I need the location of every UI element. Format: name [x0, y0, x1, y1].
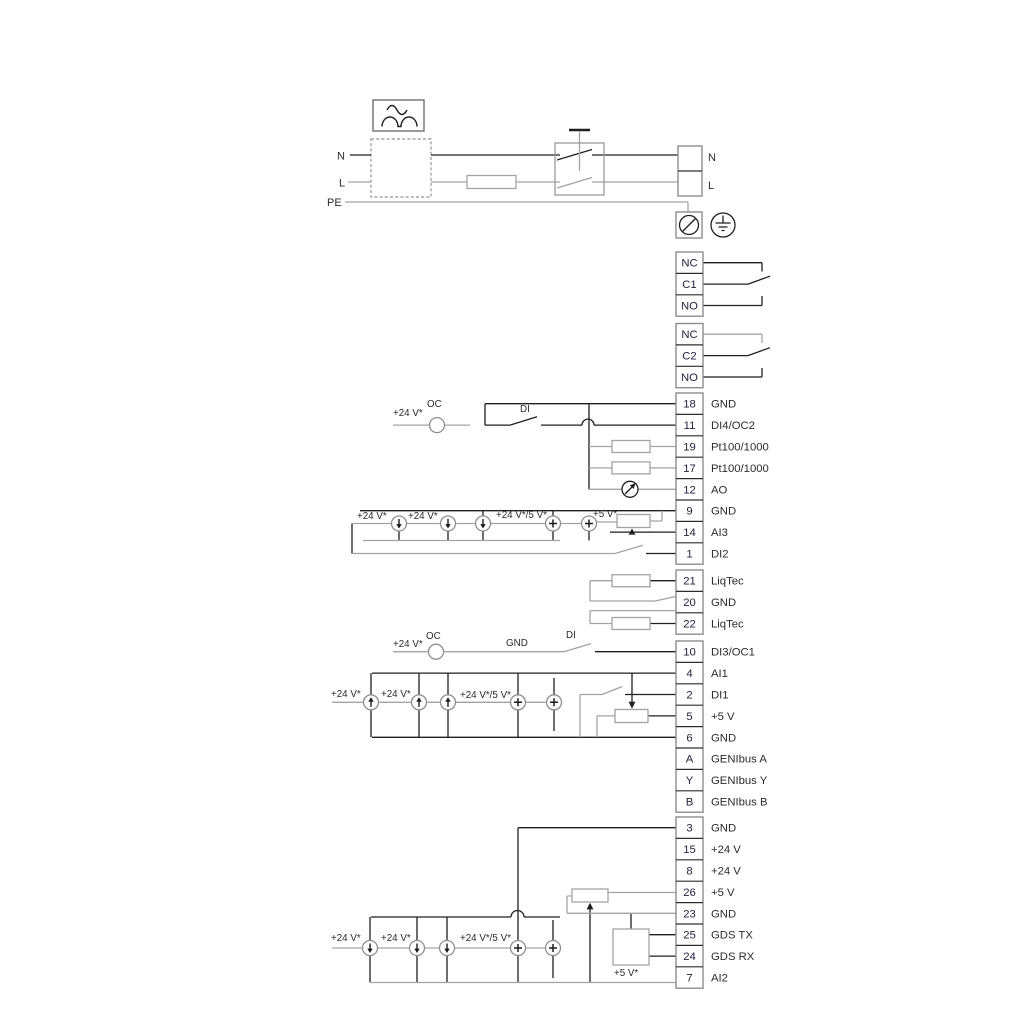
label-plus24v-ai2-2: +24 V* — [381, 933, 411, 944]
source-plus-icon — [546, 941, 561, 956]
terminal-15-number: 15 — [683, 844, 696, 856]
pt100-resistor — [612, 441, 650, 453]
terminal-23-number: 23 — [683, 908, 696, 920]
terminal-26-number: 26 — [683, 887, 696, 899]
label-pe-left: PE — [327, 197, 342, 209]
terminal-11-number: 11 — [684, 420, 696, 432]
liqtec-sensor-resistor — [612, 575, 650, 587]
terminal-6-number: 6 — [686, 732, 692, 744]
relay2-terminal-NO: NO — [681, 372, 698, 384]
label-plus24v-ai1-1: +24 V* — [331, 689, 361, 700]
label-di-di4: DI — [520, 404, 530, 415]
source-arrow-down-icon — [441, 516, 456, 531]
potentiometer-ai1 — [615, 710, 648, 723]
terminal-20-label: GND — [711, 597, 736, 609]
terminal-1-number: 1 — [686, 549, 692, 561]
terminal-22-label: LiqTec — [711, 619, 744, 631]
terminal-19-label: Pt100/1000 — [711, 442, 769, 454]
terminal-4-number: 4 — [686, 668, 692, 680]
terminal-10-label: DI3/OC1 — [711, 647, 755, 659]
fuse — [467, 176, 516, 189]
label-plus24v-5v-ai2: +24 V*/5 V* — [460, 933, 511, 944]
terminal-A-number: A — [686, 754, 694, 766]
label-n-right: N — [708, 152, 716, 164]
terminal-2-number: 2 — [686, 690, 692, 702]
terminal-24-label: GDS RX — [711, 951, 755, 963]
terminal-5-label: +5 V — [711, 711, 735, 723]
label-plus24v-di4: +24 V* — [393, 408, 423, 419]
terminal-Y-label: GENIbus Y — [711, 775, 768, 787]
terminal-8-number: 8 — [686, 866, 692, 878]
earth-icon — [711, 213, 735, 237]
terminal-21-label: LiqTec — [711, 576, 744, 588]
label-plus24v-ai3-2: +24 V* — [408, 511, 438, 522]
source-arrow-down-icon — [363, 941, 378, 956]
n-wire — [350, 150, 678, 161]
relay1-terminal-NC: NC — [681, 258, 697, 270]
label-l-right: L — [708, 180, 714, 192]
ao-meter-icon — [622, 481, 638, 497]
terminal-Y-number: Y — [686, 775, 694, 787]
source-arrow-down-icon — [440, 941, 455, 956]
relay1-terminal-C1: C1 — [682, 279, 696, 291]
terminal-3-number: 3 — [686, 823, 692, 835]
terminal-18-number: 18 — [683, 399, 696, 411]
terminal-6-label: GND — [711, 732, 736, 744]
source-arrow-down-icon — [476, 516, 491, 531]
source-arrow-up-icon — [412, 695, 427, 710]
relay2-nc-wire — [703, 334, 762, 343]
relay1-terminal-NO: NO — [681, 301, 698, 313]
terminal-22-number: 22 — [683, 619, 696, 631]
terminal-9-number: 9 — [686, 506, 692, 518]
label-plus5v-gds: +5 V* — [614, 968, 638, 979]
terminal-12-label: AO — [711, 484, 728, 496]
label-di-di3: DI — [566, 630, 576, 641]
terminal-7-label: AI2 — [711, 973, 728, 985]
terminal-21-number: 21 — [683, 576, 696, 588]
terminal-B-number: B — [686, 797, 694, 809]
open-collector-icon — [430, 418, 445, 433]
label-oc-di4: OC — [427, 399, 442, 410]
source-arrow-down-icon — [392, 516, 407, 531]
terminal-23-label: GND — [711, 908, 736, 920]
l-pe-wires — [345, 131, 688, 212]
terminal-24-number: 24 — [683, 951, 696, 963]
label-plus24v-ai3-1: +24 V* — [357, 511, 387, 522]
liqtec-wires — [590, 575, 676, 630]
liqtec-sensor-resistor — [612, 618, 650, 630]
terminal-2-label: DI1 — [711, 690, 729, 702]
control-unit-dashed-box — [371, 139, 431, 197]
terminal-10-number: 10 — [683, 647, 696, 659]
source-arrow-up-icon — [441, 695, 456, 710]
terminal-26-label: +5 V — [711, 887, 735, 899]
relay-contact-wires — [703, 263, 770, 377]
terminal-14-number: 14 — [683, 527, 696, 539]
terminal-3-label: GND — [711, 823, 736, 835]
terminal-25-number: 25 — [683, 930, 696, 942]
label-oc-di3: OC — [426, 631, 441, 642]
label-plus24v-di3: +24 V* — [393, 639, 423, 650]
relay2-terminal-NC: NC — [681, 329, 697, 341]
source-plus-icon — [546, 516, 561, 531]
wiper-arrow-icon — [629, 702, 636, 709]
relay-switch-icon — [703, 263, 770, 377]
terminal-17-label: Pt100/1000 — [711, 463, 769, 475]
source-plus-icon — [511, 695, 526, 710]
terminal-1-label: DI2 — [711, 549, 729, 561]
terminal-B-label: GENIbus B — [711, 797, 768, 809]
terminal-18-label: GND — [711, 399, 736, 411]
terminal-8-label: +24 V — [711, 866, 741, 878]
label-plus24v-5v-ai3: +24 V*/5 V* — [496, 510, 547, 521]
terminal-11-label: DI4/OC2 — [711, 420, 755, 432]
terminal-A-label: GENIbus A — [711, 754, 767, 766]
potentiometer-ai3 — [617, 515, 650, 528]
label-plus24v-ai2-1: +24 V* — [331, 933, 361, 944]
potentiometer-ai2 — [572, 889, 608, 902]
terminal-14-label: AI3 — [711, 527, 728, 539]
terminal-strips-layer: NCC1NONCC2NO18GND11DI4/OC219Pt100/100017… — [676, 252, 769, 988]
source-plus-icon — [547, 695, 562, 710]
pt100-resistor — [612, 462, 650, 474]
terminal-20-number: 20 — [683, 597, 696, 609]
label-plus5v-ai3: +5 V* — [593, 509, 617, 520]
wiring-lines-black — [650, 581, 676, 624]
label-gnd-di3: GND — [506, 638, 528, 649]
label-plus24v-5v-ai1: +24 V*/5 V* — [460, 690, 511, 701]
terminal-17-number: 17 — [683, 463, 696, 475]
open-collector-icon — [429, 644, 444, 659]
terminal-25-label: GDS TX — [711, 930, 753, 942]
relay2-terminal-C2: C2 — [682, 351, 696, 363]
label-plus24v-ai1-2: +24 V* — [381, 689, 411, 700]
terminal-9-label: GND — [711, 506, 736, 518]
text-labels-layer: NLPENL+24 V*OCDI+24 V*+24 V*+24 V*/5 V*+… — [327, 151, 716, 980]
wiring-diagram: NCC1NONCC2NO18GND11DI4/OC219Pt100/100017… — [0, 0, 1024, 1024]
wiper-arrow-icon — [587, 903, 594, 910]
terminal-4-label: AI1 — [711, 668, 728, 680]
wiring-diagram-page: NCC1NONCC2NO18GND11DI4/OC219Pt100/100017… — [0, 0, 1024, 1024]
power-section — [345, 100, 735, 238]
source-symbols-layer — [363, 516, 597, 956]
terminal-19-number: 19 — [683, 442, 696, 454]
io-bottom-wires — [332, 828, 676, 983]
terminal-12-number: 12 — [683, 484, 696, 496]
source-arrow-down-icon — [410, 941, 425, 956]
label-l-left: L — [339, 178, 345, 190]
source-arrow-up-icon — [364, 695, 379, 710]
label-n-left: N — [337, 151, 345, 163]
terminal-15-label: +24 V — [711, 844, 741, 856]
terminal-5-number: 5 — [686, 711, 692, 723]
terminal-7-number: 7 — [686, 973, 692, 985]
source-plus-icon — [511, 941, 526, 956]
gds-sensor-box — [613, 929, 649, 965]
